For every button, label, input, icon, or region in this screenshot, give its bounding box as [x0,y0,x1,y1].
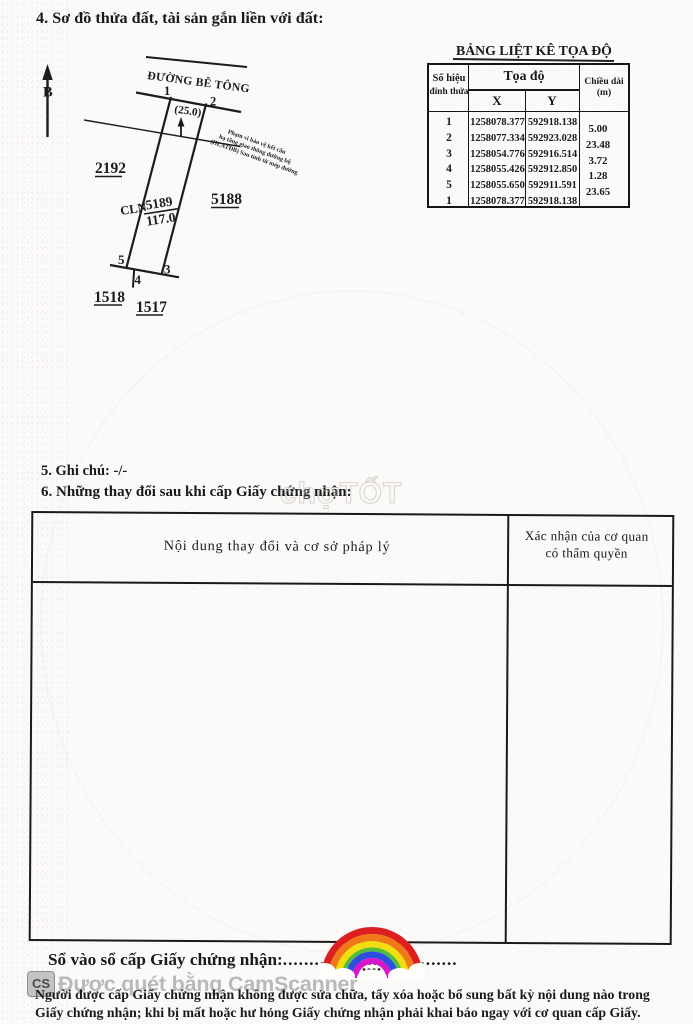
svg-text:B: B [43,85,53,101]
svg-text:117.0: 117.0 [145,209,177,228]
svg-text:4: 4 [135,272,142,287]
svg-text:5188: 5188 [211,191,242,208]
svg-text:1518: 1518 [94,289,125,306]
svg-text:CLN: CLN [119,200,147,218]
svg-text:1517: 1517 [136,299,167,316]
svg-text:2: 2 [210,95,216,109]
svg-text:5: 5 [118,252,125,267]
svg-text:1: 1 [164,84,170,98]
svg-text:ĐƯỜNG BÊ TÔNG: ĐƯỜNG BÊ TÔNG [147,68,251,95]
svg-text:2192: 2192 [95,160,126,177]
svg-text:3: 3 [164,262,171,277]
svg-text:(25.0): (25.0) [174,104,203,120]
